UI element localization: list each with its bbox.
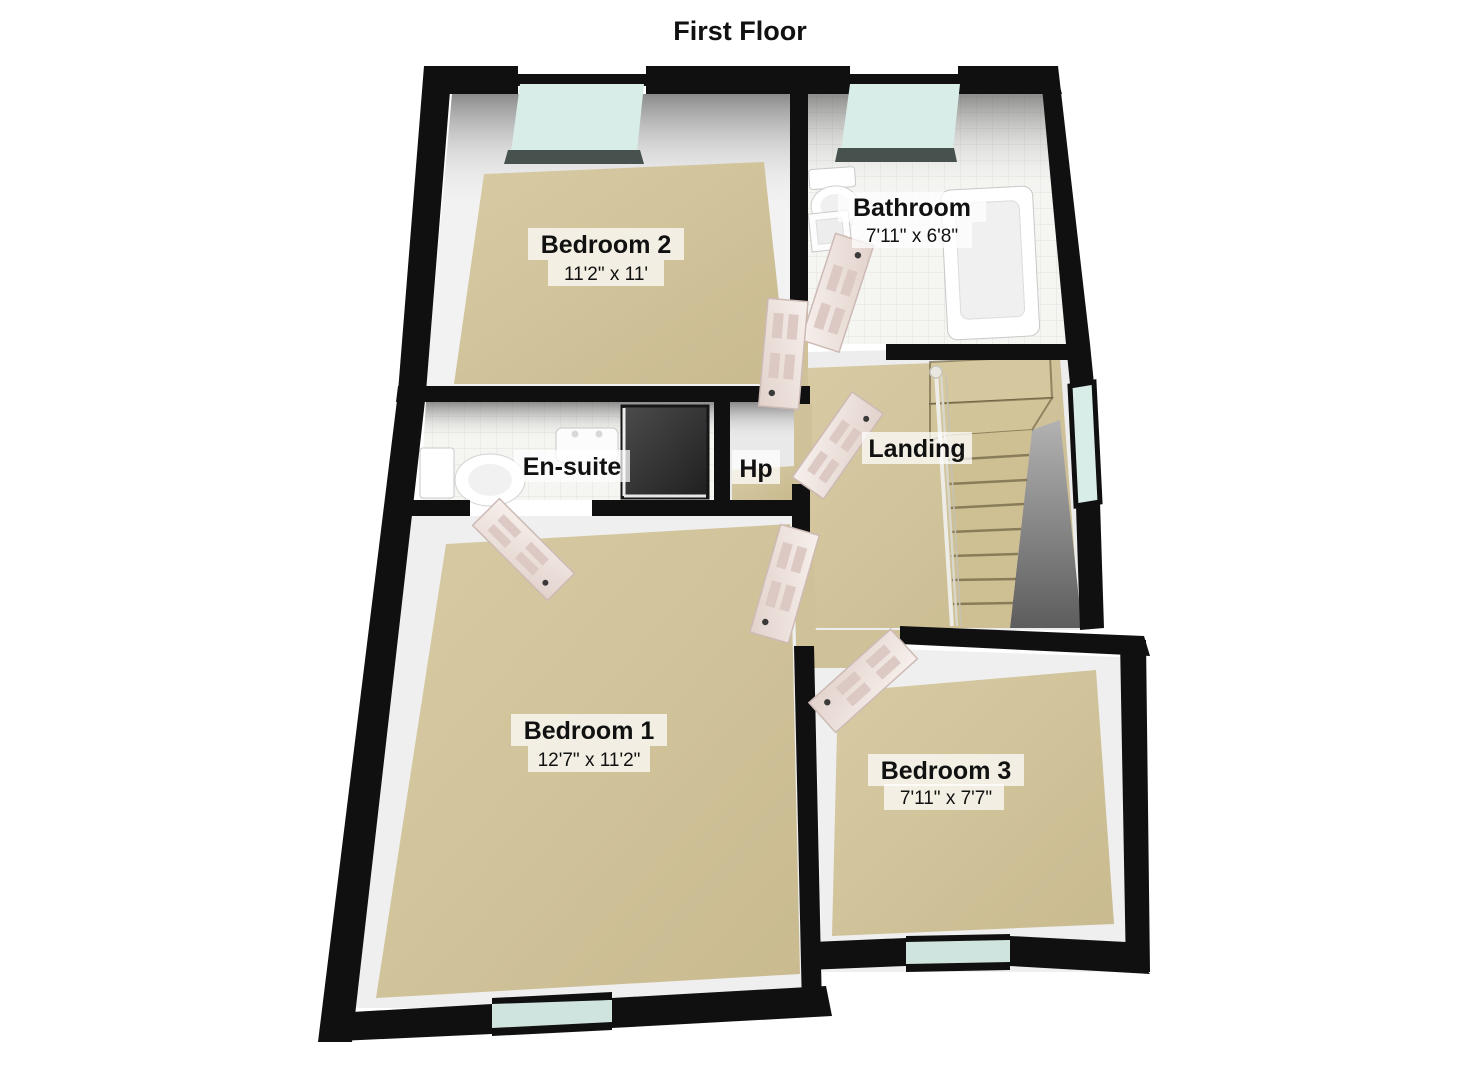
wall-ensuite-bottom-left (392, 500, 470, 516)
landing-label: Landing (862, 432, 972, 464)
bathroom-dims: 7'11" x 6'8" (866, 226, 958, 247)
wall-ensuite-bottom-right (592, 500, 808, 516)
landing-window (1070, 382, 1100, 506)
bathroom-label: Bathroom 7'11" x 6'8" (838, 192, 986, 248)
bedroom2-door (759, 298, 808, 409)
ensuite-shower (622, 406, 708, 498)
floorplan-canvas: First Floor Bedroom 2 11'2" x 11' Bathro… (0, 0, 1484, 1080)
wall-ensuite-hp-divider (714, 402, 730, 500)
bedroom2-dims: 11'2" x 11' (564, 264, 648, 285)
bedroom2-window (504, 74, 648, 164)
bathroom-name: Bathroom (853, 194, 971, 222)
bedroom1-window (492, 992, 612, 1036)
bedroom3-label: Bedroom 3 7'11" x 7'7" (868, 754, 1024, 810)
stair-winder-1 (930, 356, 1052, 404)
page-title: First Floor (673, 16, 807, 46)
bedroom2-label: Bedroom 2 11'2" x 11' (528, 228, 684, 286)
hp-name: Hp (739, 455, 772, 483)
landing-name: Landing (868, 435, 965, 463)
wall-divider-bed2-bath (790, 94, 808, 302)
wall-top-middle (646, 66, 850, 94)
wall-right-landing-upper (1066, 344, 1094, 384)
railing-newel-cap (930, 366, 942, 378)
floorplan-svg: First Floor Bedroom 2 11'2" x 11' Bathro… (0, 0, 1484, 1080)
bedroom3-dims: 7'11" x 7'7" (900, 788, 992, 809)
bedroom2-name: Bedroom 2 (541, 231, 672, 259)
bedroom1-label: Bedroom 1 12'7" x 11'2" (511, 714, 667, 772)
ensuite-label: En-suite (514, 450, 630, 482)
bedroom3-name: Bedroom 3 (881, 757, 1012, 785)
bedroom1-dims: 12'7" x 11'2" (538, 750, 641, 771)
bathroom-window (835, 74, 962, 162)
bedroom3-window (906, 934, 1010, 972)
wall-bathroom-bottom (886, 344, 1072, 360)
ensuite-name: En-suite (523, 453, 622, 481)
bedroom1-name: Bedroom 1 (524, 717, 655, 745)
wall-right-landing-lower (1076, 502, 1104, 630)
wall-bed2-bottom (396, 386, 808, 402)
hp-label: Hp (732, 450, 780, 484)
